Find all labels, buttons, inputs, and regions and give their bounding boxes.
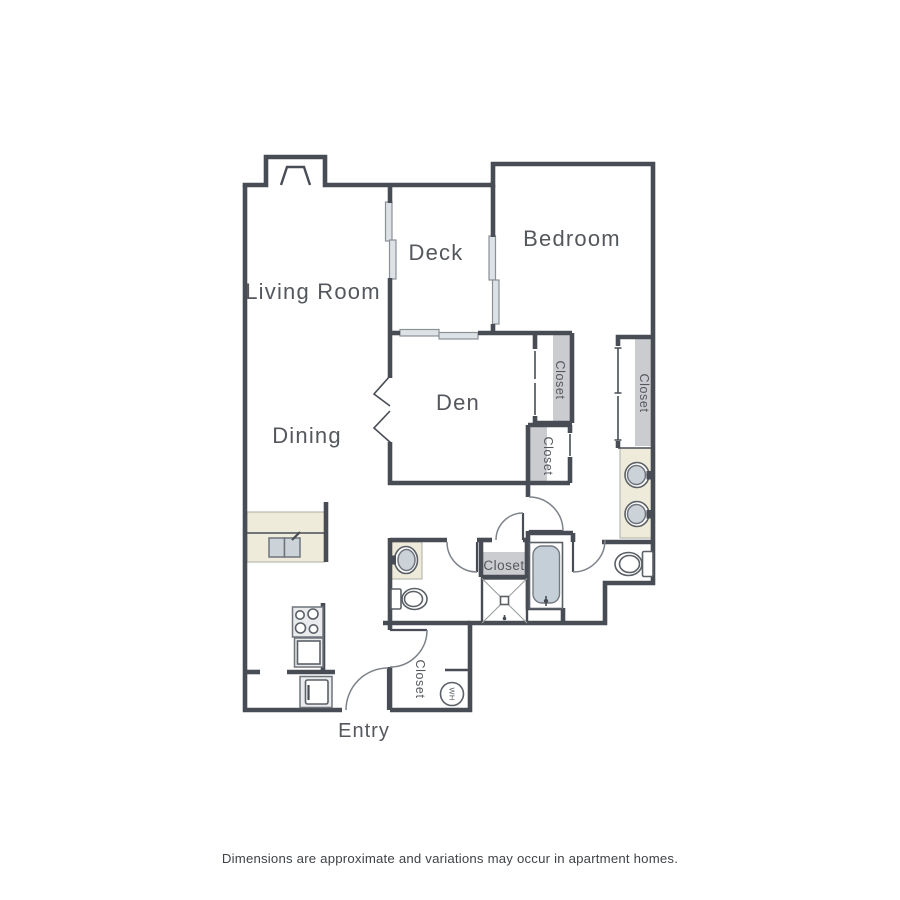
den-closet2-label: Closet [541, 436, 555, 475]
accordion-door [374, 411, 391, 443]
water-heater-icon: WH [441, 683, 464, 706]
bathtub-icon [530, 543, 563, 609]
den-closet-label: Closet [553, 360, 567, 399]
living-deck-window [386, 202, 393, 241]
den-deck-slider [400, 330, 439, 337]
shower-icon [482, 579, 527, 624]
swing-doors [346, 497, 605, 710]
master-toilet-icon [615, 552, 653, 577]
deck-bedroom-window [489, 236, 496, 280]
oven-icon [295, 638, 324, 667]
den-deck-slider [439, 333, 478, 340]
walkin-closet-label: Closet [637, 373, 651, 412]
master-bath-door-swing [573, 540, 605, 572]
hall-door-swing [529, 497, 563, 531]
entry-closet-label: Closet [413, 659, 427, 698]
floor-plan-page: WH Living Room Dining Deck Bedroom Den E… [0, 0, 900, 900]
stove-icon [293, 607, 324, 637]
hall-bath-door-swing [447, 542, 477, 572]
entry-label: Entry [338, 720, 390, 742]
entry-door-swing [346, 668, 388, 710]
deck-label: Deck [409, 240, 464, 265]
hall-closet-door-swing [496, 513, 523, 540]
water-heater-label: WH [448, 687, 457, 700]
floor-plan: WH Living Room Dining Deck Bedroom Den E… [0, 0, 900, 900]
fireplace [281, 167, 310, 185]
living-room-label: Living Room [245, 279, 380, 304]
living-deck-window [390, 240, 397, 279]
deck-bedroom-window [493, 280, 500, 324]
folding-doors [374, 348, 622, 456]
refrigerator-icon [300, 677, 332, 708]
den-label: Den [436, 390, 480, 415]
dining-label: Dining [272, 423, 342, 448]
accordion-door [374, 376, 390, 406]
disclaimer-text: Dimensions are approximate and variation… [222, 851, 678, 866]
counters [247, 448, 653, 579]
hall-closet-label: Closet [483, 558, 524, 573]
windows [386, 202, 500, 339]
hall-toilet-icon [391, 589, 427, 610]
bedroom-label: Bedroom [523, 226, 621, 251]
